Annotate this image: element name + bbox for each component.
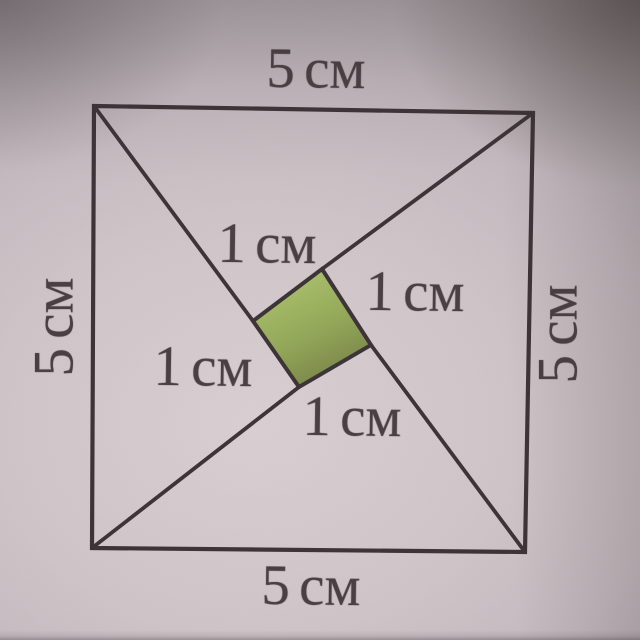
corner-segment-top-right — [322, 113, 533, 269]
label-inner-side-bottom: 1 см — [302, 388, 402, 446]
label-inner-side-top-left: 1 см — [217, 215, 317, 273]
inner-square — [253, 269, 371, 387]
label-outer-side-left: 5 см — [26, 277, 83, 376]
label-inner-side-right: 1 см — [365, 263, 465, 321]
label-outer-side-top: 5 см — [266, 40, 366, 98]
corner-segment-bottom-left — [92, 387, 299, 548]
label-outer-side-right: 5 см — [530, 284, 587, 383]
label-inner-side-left: 1 см — [153, 338, 253, 396]
textbook-page-photo: 5 см 5 см 5 см 5 см 1 см 1 см 1 см 1 см — [0, 0, 640, 640]
label-outer-side-bottom: 5 см — [261, 557, 361, 615]
